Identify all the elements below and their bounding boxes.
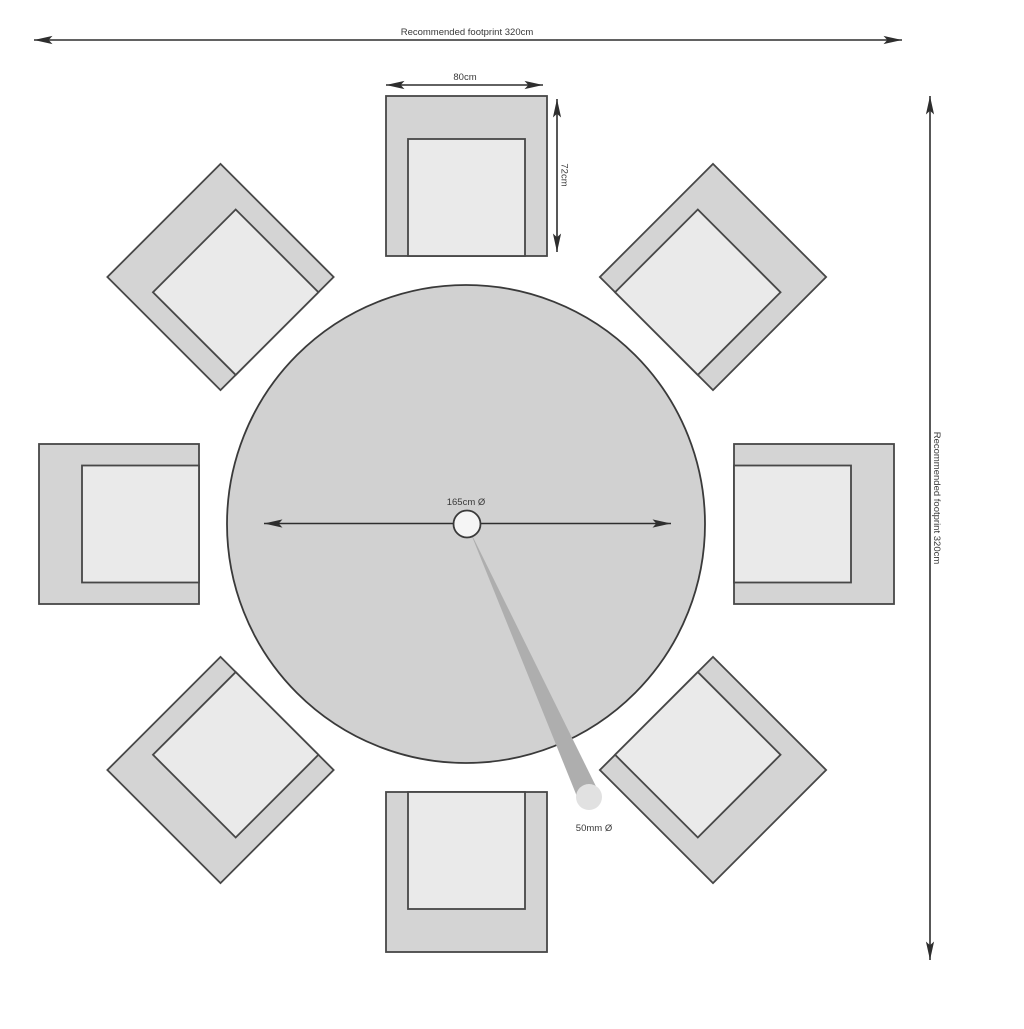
- svg-text:80cm: 80cm: [453, 72, 476, 83]
- svg-text:72cm: 72cm: [559, 163, 570, 186]
- svg-text:Recommended footprint 320cm: Recommended footprint 320cm: [931, 432, 942, 565]
- svg-text:Recommended footprint 320cm: Recommended footprint 320cm: [401, 27, 534, 38]
- svg-text:50mm Ø: 50mm Ø: [576, 823, 613, 834]
- svg-text:165cm Ø: 165cm Ø: [447, 497, 486, 508]
